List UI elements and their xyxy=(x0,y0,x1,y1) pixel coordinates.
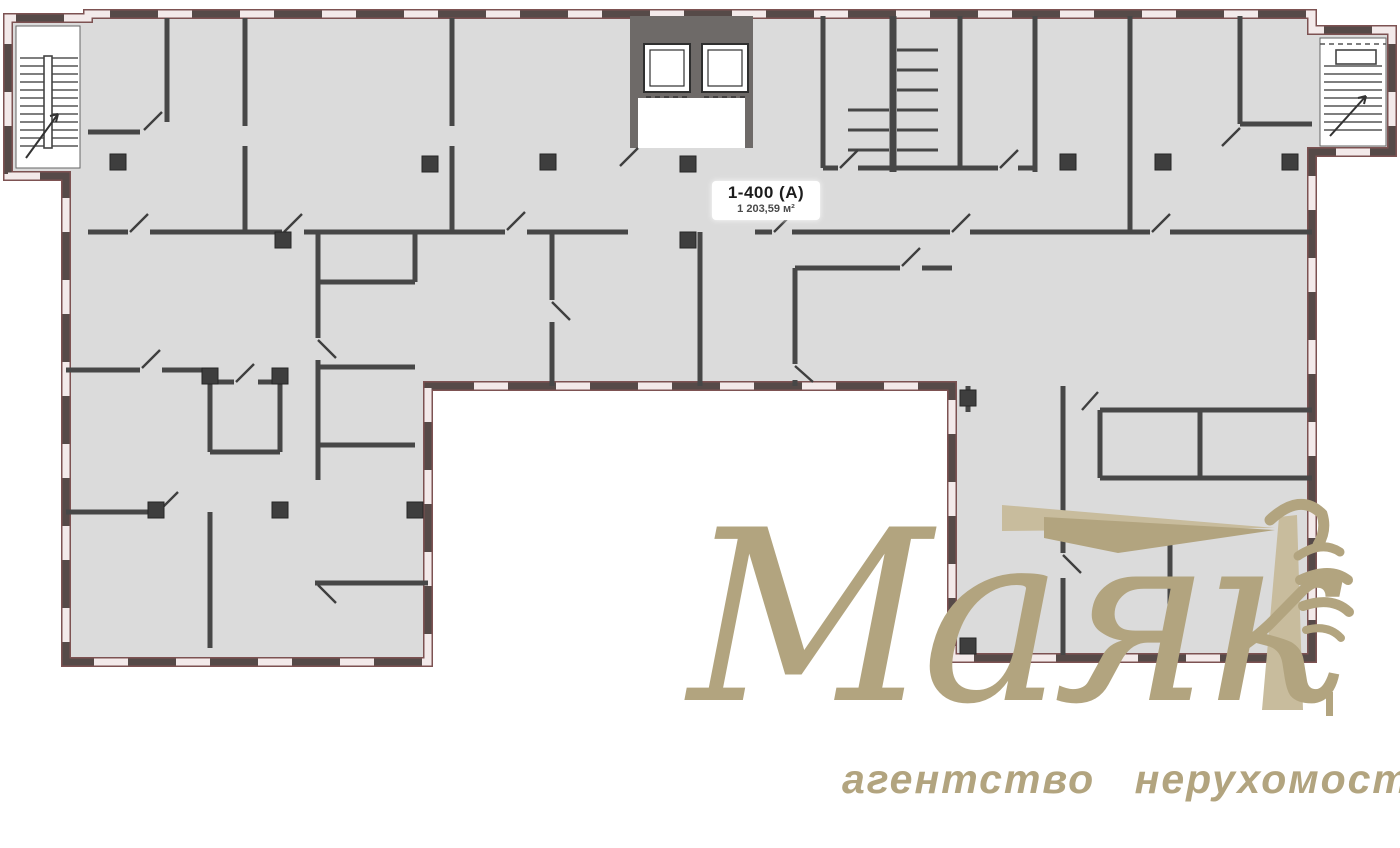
elevator-car-1 xyxy=(644,44,690,97)
unit-area: 1 203,59 м² xyxy=(714,203,818,216)
unit-id: 1-400 (А) xyxy=(714,184,818,202)
floor-plan-page: 1-400 (А) 1 203,59 м² Маяк агентство нер… xyxy=(0,0,1400,848)
elevator-core xyxy=(630,16,753,148)
elevator-car-2 xyxy=(702,44,748,97)
elevator-lobby xyxy=(638,98,745,148)
stair-stringer xyxy=(44,56,52,148)
right-stairwell xyxy=(1320,38,1386,146)
watermark-brand: Маяк xyxy=(688,506,1333,732)
left-stairwell xyxy=(16,26,80,168)
unit-label: 1-400 (А) 1 203,59 м² xyxy=(712,181,820,220)
watermark-tagline: агентство нерухомості xyxy=(842,756,1400,803)
